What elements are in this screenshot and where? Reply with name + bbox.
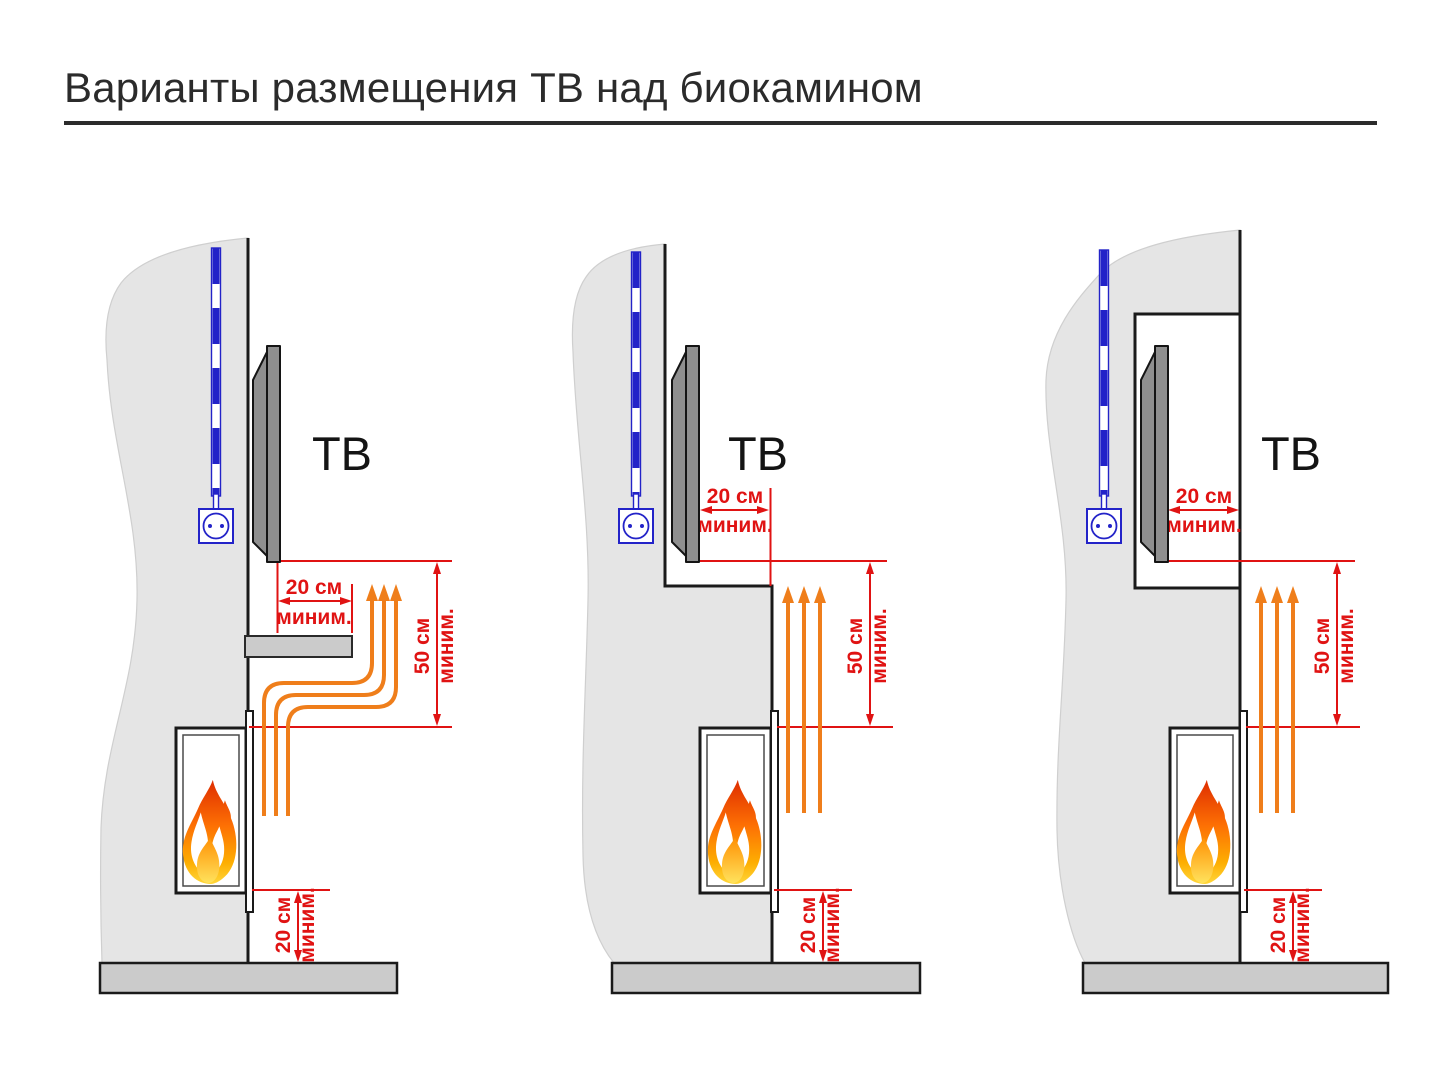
tv-side-view [1141,346,1168,562]
heat-arrow [288,601,396,816]
tv-side-view [672,346,699,562]
dimension-note: миним. [697,514,772,537]
floor-slab [612,963,920,993]
power-outlet-icon [1087,509,1121,543]
tv-back [1141,352,1155,556]
dimension-tv-clearance: 20 см миним. [276,561,352,633]
dimension-value: 20 см [1176,485,1232,508]
outlet-circle [624,514,649,539]
dimension-note: миним. [868,608,891,683]
outlet-pin [640,524,644,528]
outlet-pin [1096,524,1100,528]
outlet-pin [628,524,632,528]
tv-label: ТВ [1261,427,1321,480]
dimension-floor-clearance: 20 см миним. [252,887,330,962]
dimension-value: 20 см [286,576,342,599]
tv-side-view [253,346,280,562]
dimension-value: 20 см [272,897,295,953]
heat-flow-arrows [1261,603,1293,813]
dimension-value: 20 см [1267,897,1290,953]
tv-panel [267,346,280,562]
power-cable [212,248,221,510]
tv-back [253,352,267,556]
dimension-note: миним. [296,887,319,962]
cable-lead [214,494,219,510]
dimension-note: миним. [1291,887,1314,962]
dimension-note: миним. [1166,514,1241,537]
heat-flow-arrows [788,603,820,813]
dimension-value: 20 см [707,485,763,508]
variant-3: 20 см миним. 50 см миним. 20 см миним. [1046,230,1388,993]
floor-slab [100,963,397,993]
tv-panel [686,346,699,562]
power-outlet-icon [619,509,653,543]
outlet-circle [204,514,229,539]
tv-label: ТВ [312,427,372,480]
dimension-value: 20 см [797,897,820,953]
fireplace-glass-front [1240,711,1247,912]
variant-2: 20 см миним. 50 см миним. 20 см миним. [572,244,920,993]
cable-lead [634,494,639,510]
protective-shelf [245,636,352,657]
heat-flow-arrows [264,601,396,816]
tv-label: ТВ [728,427,788,480]
power-outlet-icon [199,509,233,543]
tv-back [672,352,686,556]
outlet-circle [1092,514,1117,539]
tv-panel [1155,346,1168,562]
outlet-pin [208,524,212,528]
dimension-note: миним. [1335,608,1358,683]
dimension-note: миним. [821,887,844,962]
outlet-pin [1108,524,1112,528]
power-cable [1100,250,1109,510]
variant-1: 20 см миним. 50 см миним. 20 см миним. [100,238,458,993]
fireplace-glass-front [246,711,253,912]
dimension-value: 50 см [1311,618,1334,674]
dimension-floor-clearance: 20 см миним. [1244,887,1322,962]
power-cable [632,252,641,510]
infographic-page: Варианты размещения ТВ над биокамином [0,0,1440,1080]
dimension-note: миним. [276,606,351,629]
dimension-note: миним. [435,608,458,683]
cable-lead [1102,494,1107,510]
dimension-value: 50 см [844,618,867,674]
fireplace-glass-front [771,711,778,912]
floor-slab [1083,963,1388,993]
dimension-floor-clearance: 20 см миним. [774,887,852,962]
outlet-pin [220,524,224,528]
diagram-canvas: 20 см миним. 50 см миним. 20 см миним. [0,0,1440,1080]
dimension-value: 50 см [411,618,434,674]
dimension-tv-clearance: 20 см миним. [697,485,772,586]
